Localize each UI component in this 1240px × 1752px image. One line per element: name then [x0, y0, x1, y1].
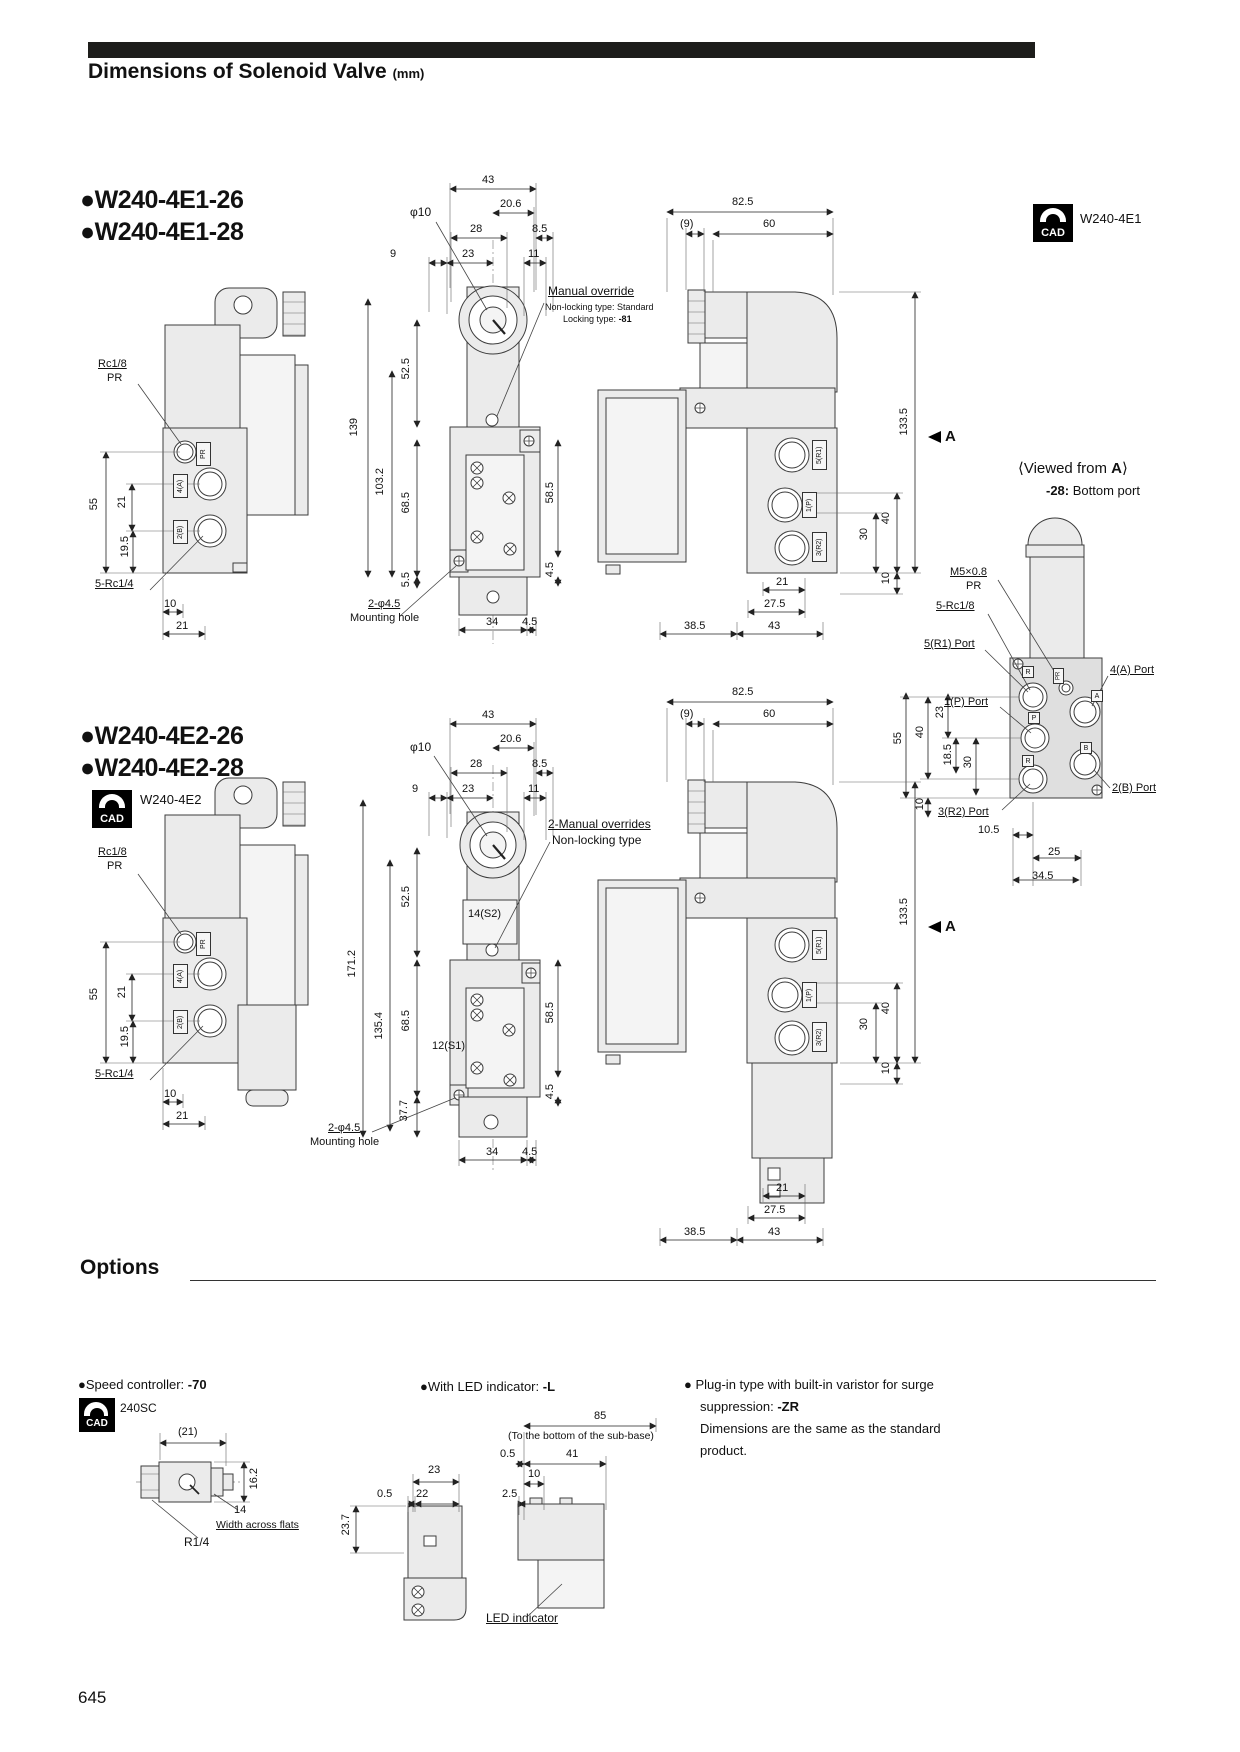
- view-a-title: ⟨Viewed from A⟩: [1018, 460, 1128, 477]
- dim-label: 68.5: [400, 1010, 413, 1031]
- port-callout: Rc1/8: [98, 358, 127, 371]
- dim-label: 28: [470, 758, 482, 771]
- dim-label: 40: [880, 512, 893, 524]
- dim-label: 52.5: [400, 886, 413, 907]
- dim-label: 10: [880, 572, 893, 584]
- dim-label: 10: [528, 1468, 540, 1481]
- solenoid-label: 12(S1): [432, 1040, 465, 1053]
- port-tag: 5(R1): [812, 930, 827, 960]
- dim-label: 0.5: [377, 1488, 392, 1501]
- view-a-subtitle: -28: Bottom port: [1046, 484, 1140, 499]
- dim-label: 23: [428, 1464, 440, 1477]
- port-tag: PR: [196, 932, 211, 956]
- dim-label: 23: [462, 248, 474, 261]
- dim-label: 21: [776, 576, 788, 589]
- technical-drawing-canvas: [0, 0, 1240, 1752]
- dim-label: 103.2: [374, 468, 387, 496]
- port-callout: 5-Rc1/8: [936, 600, 975, 613]
- dim-label: 20.6: [500, 198, 521, 211]
- manual-override-callout: 2-Manual overrides: [548, 818, 651, 832]
- port-tag: P: [1028, 712, 1040, 724]
- mounting-hole-callout: 2-φ4.5: [328, 1122, 360, 1135]
- valve-4e2-side-view: [598, 702, 921, 1246]
- dim-label: 68.5: [400, 492, 413, 513]
- dim-label: 133.5: [898, 898, 911, 926]
- dim-label: φ10: [410, 741, 431, 755]
- dim-label: 9: [412, 783, 418, 796]
- port-callout: M5×0.8: [950, 566, 987, 579]
- dim-label: 55: [892, 732, 905, 744]
- dim-label: 8.5: [532, 223, 547, 236]
- port-callout: 5(R1) Port: [924, 638, 975, 651]
- page-title: Dimensions of Solenoid Valve (mm): [88, 60, 424, 84]
- port-tag: 5(R1): [812, 440, 827, 470]
- manual-override-note: Locking type: -81: [563, 314, 632, 324]
- dim-label: 135.4: [373, 1012, 386, 1040]
- cad-icon[interactable]: CAD: [1033, 204, 1073, 242]
- port-tag: 1(P): [802, 982, 817, 1008]
- port-tag: PR: [1053, 668, 1064, 684]
- dim-label: 10: [914, 798, 927, 810]
- port-tag: 3(R2): [812, 1022, 827, 1052]
- port-callout: PR: [966, 580, 981, 593]
- dim-label: 60: [763, 708, 775, 721]
- valve-4e1-side-view: [598, 212, 921, 640]
- dim-label: 43: [768, 1226, 780, 1239]
- dim-label: (9): [680, 708, 693, 721]
- port-callout: Rc1/8: [98, 846, 127, 859]
- dim-label: 10.5: [978, 824, 999, 837]
- dim-label: 8.5: [532, 758, 547, 771]
- model-label-4e1-28: ●W240-4E1-28: [80, 218, 243, 247]
- dim-label: 10: [164, 1088, 176, 1101]
- dim-label: 23: [462, 783, 474, 796]
- dim-label: 43: [482, 709, 494, 722]
- mounting-hole-callout: Mounting hole: [310, 1136, 379, 1149]
- dim-label: 171.2: [346, 950, 359, 978]
- port-callout: 5-Rc1/4: [95, 578, 134, 591]
- option-plugin-text: ● Plug-in type with built-in varistor fo…: [684, 1378, 934, 1393]
- dim-label: 82.5: [732, 196, 753, 209]
- unit-label: (mm): [393, 66, 425, 81]
- cad-model-label: W240-4E1: [1080, 212, 1141, 227]
- catalog-page: Dimensions of Solenoid Valve (mm) ●W240-…: [0, 0, 1240, 1752]
- dim-label: 34: [486, 1146, 498, 1159]
- dim-label: 21: [116, 986, 129, 998]
- port-tag: PR: [196, 442, 211, 466]
- cad-model-label: W240-4E2: [140, 793, 201, 808]
- dim-label: 14: [234, 1504, 246, 1517]
- port-callout: PR: [107, 860, 122, 873]
- option-led-label: ●With LED indicator: -L: [420, 1380, 555, 1395]
- dim-label: 18.5: [942, 744, 955, 765]
- cad-model-label: 240SC: [120, 1402, 157, 1416]
- manual-override-callout: Manual override: [548, 285, 634, 299]
- dim-label: 41: [566, 1448, 578, 1461]
- dim-label: 43: [482, 174, 494, 187]
- dim-label: 10: [880, 1062, 893, 1074]
- port-callout: 3(R2) Port: [938, 806, 989, 819]
- dim-label: 21: [176, 620, 188, 633]
- dim-label: 30: [858, 528, 871, 540]
- option-plugin-text: product.: [700, 1444, 747, 1459]
- dim-label: 20.6: [500, 733, 521, 746]
- port-callout: 2(B) Port: [1112, 782, 1156, 795]
- mounting-hole-callout: 2-φ4.5: [368, 598, 400, 611]
- dim-label: 58.5: [544, 1002, 557, 1023]
- options-rule: [190, 1280, 1156, 1281]
- dim-label: 16.2: [248, 1468, 261, 1489]
- port-tag: 2(B): [173, 1010, 188, 1034]
- dim-label: 4.5: [522, 616, 537, 629]
- options-heading: Options: [80, 1256, 159, 1280]
- dim-label: 21: [176, 1110, 188, 1123]
- view-a-arrow-icon: [928, 921, 941, 933]
- port-tag: 2(B): [173, 520, 188, 544]
- dim-label: 19.5: [119, 1026, 132, 1047]
- dim-label: 28: [470, 223, 482, 236]
- port-tag: R: [1022, 666, 1034, 678]
- cad-icon[interactable]: CAD: [79, 1398, 115, 1432]
- dim-label: 21: [116, 496, 129, 508]
- dim-label: 23.7: [340, 1514, 353, 1535]
- dim-label: 30: [962, 756, 975, 768]
- option-plugin-text: Dimensions are the same as the standard: [700, 1422, 941, 1437]
- page-number: 645: [78, 1688, 106, 1708]
- dim-label: 2.5: [502, 1488, 517, 1501]
- port-tag: 4(A): [173, 474, 188, 498]
- dim-label: 4.5: [544, 1084, 557, 1099]
- dim-label: 55: [88, 988, 101, 1000]
- dim-label: 58.5: [544, 482, 557, 503]
- port-callout: 1(P) Port: [944, 696, 988, 709]
- dim-label: 133.5: [898, 408, 911, 436]
- dim-label: (21): [178, 1426, 198, 1439]
- dim-label: 37.7: [398, 1100, 411, 1121]
- valve-4e1-bottom-port-view: [900, 518, 1110, 886]
- dim-label: 27.5: [764, 1204, 785, 1217]
- port-tag: A: [1091, 690, 1103, 702]
- dim-label: 11: [528, 248, 539, 261]
- model-label-4e1-26: ●W240-4E1-26: [80, 186, 243, 215]
- dim-label: 27.5: [764, 598, 785, 611]
- dim-label: 25: [1048, 846, 1060, 859]
- cad-icon[interactable]: CAD: [92, 790, 132, 828]
- led-indicator-callout: LED indicator: [486, 1612, 558, 1626]
- dim-label: 60: [763, 218, 775, 231]
- dim-note: (To the bottom of the sub-base): [508, 1430, 654, 1442]
- dim-label: 0.5: [500, 1448, 515, 1461]
- dim-label: 5.5: [400, 572, 413, 587]
- manual-override-note: Non-locking type: [552, 834, 641, 848]
- port-tag: 4(A): [173, 964, 188, 988]
- dim-label: 34.5: [1032, 870, 1053, 883]
- port-callout: 5-Rc1/4: [95, 1068, 134, 1081]
- dim-label: 21: [776, 1182, 788, 1195]
- dim-label: 52.5: [400, 358, 413, 379]
- port-tag: 1(P): [802, 492, 817, 518]
- dim-label: 43: [768, 620, 780, 633]
- dim-label: 19.5: [119, 536, 132, 557]
- dim-label: 40: [880, 1002, 893, 1014]
- dim-label: 9: [390, 248, 396, 261]
- title-bar: [88, 42, 1035, 58]
- dim-label: 38.5: [684, 620, 705, 633]
- model-label-4e2-26: ●W240-4E2-26: [80, 722, 243, 751]
- dim-label: 4.5: [522, 1146, 537, 1159]
- view-a-arrow: A: [928, 918, 956, 935]
- dim-label: 40: [914, 726, 927, 738]
- width-across-flats-callout: Width across flats: [216, 1519, 299, 1531]
- option-plugin-text: suppression: -ZR: [700, 1400, 799, 1415]
- dim-label: 139: [348, 418, 361, 436]
- dim-label: 30: [858, 1018, 871, 1030]
- port-callout: PR: [107, 372, 122, 385]
- port-callout: 4(A) Port: [1110, 664, 1154, 677]
- model-label-4e2-28: ●W240-4E2-28: [80, 754, 243, 783]
- port-tag: R: [1022, 755, 1034, 767]
- port-tag: 3(R2): [812, 532, 827, 562]
- view-a-arrow: A: [928, 428, 956, 445]
- dim-label: 34: [486, 616, 498, 629]
- dim-label: 38.5: [684, 1226, 705, 1239]
- dim-label: 23: [934, 706, 947, 718]
- solenoid-label: 14(S2): [468, 908, 501, 921]
- dim-label: 11: [528, 783, 539, 796]
- manual-override-note: Non-locking type: Standard: [545, 302, 654, 312]
- dim-label: 85: [594, 1410, 606, 1423]
- port-callout: R1/4: [184, 1536, 209, 1550]
- dim-label: (9): [680, 218, 693, 231]
- dim-label: 82.5: [732, 686, 753, 699]
- dim-label: 4.5: [544, 562, 557, 577]
- dim-label: 55: [88, 498, 101, 510]
- dim-label: φ10: [410, 206, 431, 220]
- view-a-arrow-icon: [928, 431, 941, 443]
- port-tag: B: [1080, 742, 1092, 754]
- option-speed-controller-label: ●Speed controller: -70: [78, 1378, 207, 1393]
- dim-label: 22: [416, 1488, 428, 1501]
- mounting-hole-callout: Mounting hole: [350, 612, 419, 625]
- dim-label: 10: [164, 598, 176, 611]
